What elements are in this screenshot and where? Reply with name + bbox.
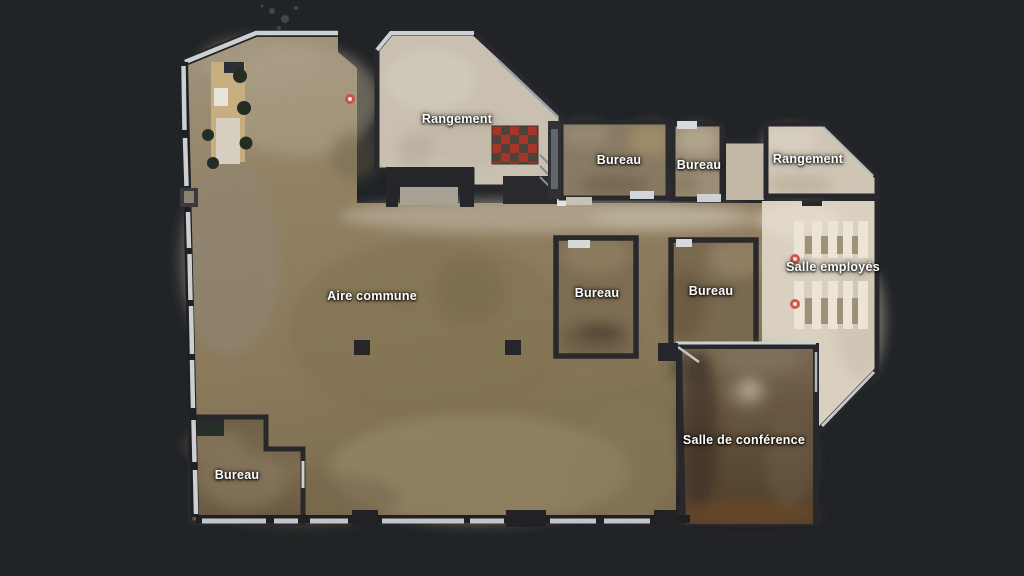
doorway-wall [460,185,474,207]
door-mark [630,191,654,199]
doorway-wall [386,167,474,187]
room-bureau-mid-1[interactable] [556,237,636,356]
door-mark [676,239,692,247]
hallway-floor[interactable] [726,143,764,200]
door-mat [566,197,592,205]
hallway-top-right[interactable] [724,141,766,200]
doorway-wall [386,185,398,207]
door-mark [677,121,697,129]
door-mat [697,194,721,202]
scan-marker-icon[interactable] [790,254,800,264]
room-bureau-mid-2[interactable] [665,238,768,348]
room-bureau-top-2[interactable] [670,121,722,202]
mesh-artifacts [261,5,299,31]
pillar [505,340,521,355]
wall-pier [658,343,678,361]
room-rangement-top[interactable] [377,33,566,207]
door-mark [568,240,590,248]
pillar [354,340,370,355]
scan-marker-icon[interactable] [345,94,355,104]
floorplan-view[interactable]: Rangement Bureau Bureau Rangement Salle … [0,0,1024,576]
floorplan-svg[interactable] [0,0,1024,576]
room-salle-de-conference[interactable] [658,343,820,530]
door-mat [400,187,458,205]
glass-wall-pane [551,129,558,189]
room-rangement-right[interactable] [765,124,877,196]
checkered-mat [492,126,538,164]
scan-marker-icon[interactable] [790,299,800,309]
room-bureau-top-1[interactable] [548,121,672,205]
